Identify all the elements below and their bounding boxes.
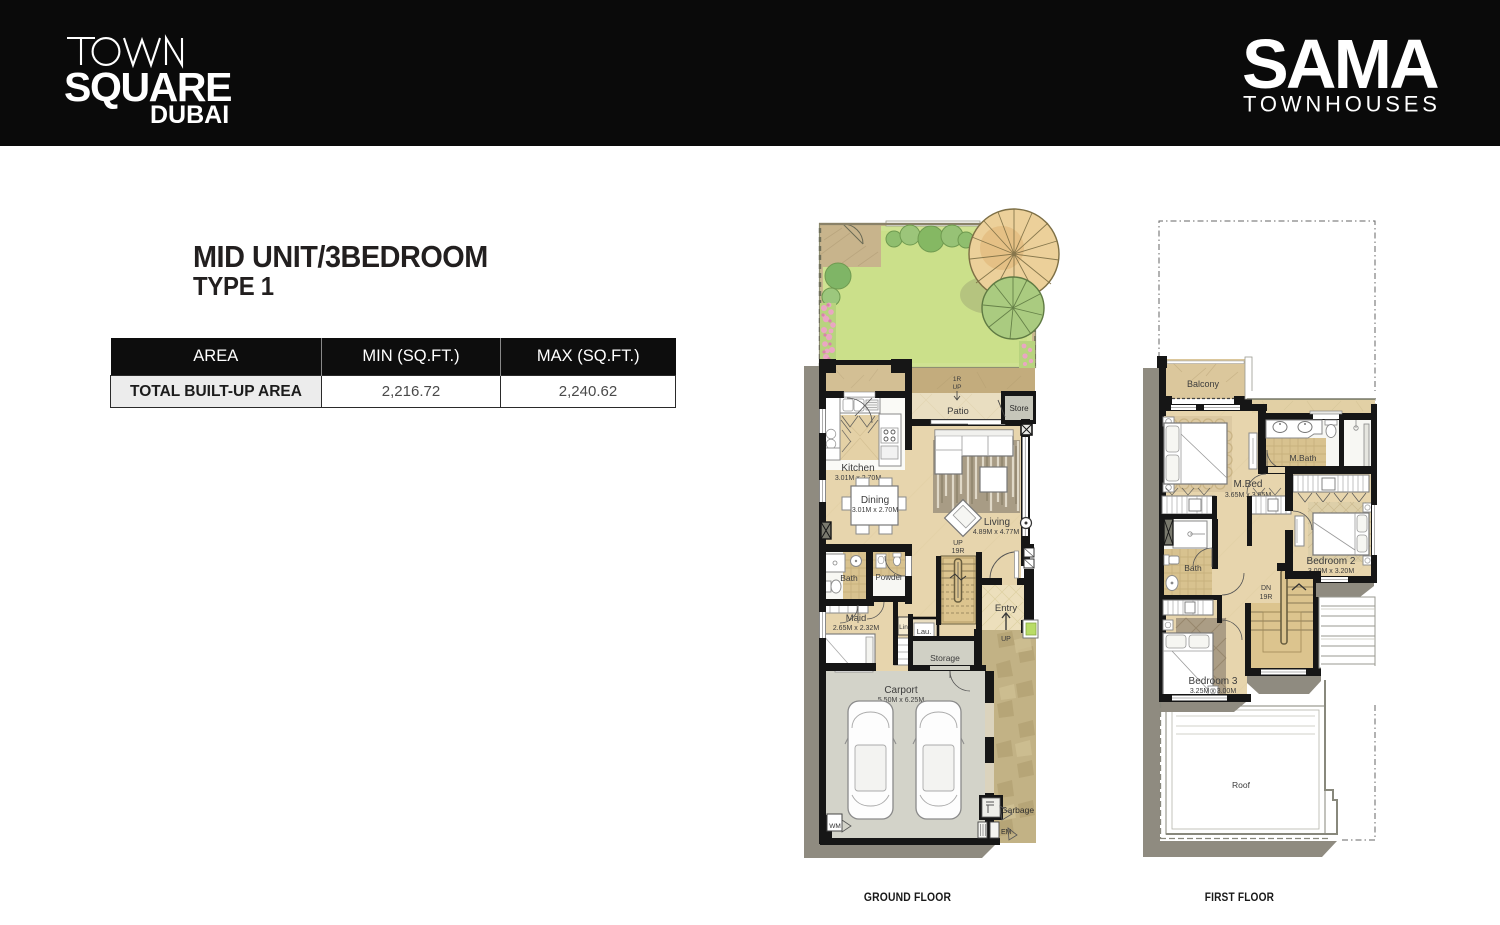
svg-text:3.25M x 3.00M: 3.25M x 3.00M <box>1190 688 1236 695</box>
svg-text:M.Bath: M.Bath <box>1290 453 1317 463</box>
svg-text:4.89M x 4.77M: 4.89M x 4.77M <box>973 529 1019 536</box>
svg-text:Roof: Roof <box>1232 780 1251 790</box>
svg-text:Powder: Powder <box>875 573 902 582</box>
svg-text:19R: 19R <box>1260 594 1273 601</box>
svg-text:WM: WM <box>829 823 841 830</box>
svg-text:Kitchen: Kitchen <box>841 463 874 474</box>
svg-text:UP: UP <box>1001 636 1011 643</box>
svg-text:Carport: Carport <box>884 685 918 696</box>
svg-text:Storage: Storage <box>930 653 960 663</box>
svg-text:UP: UP <box>952 384 961 391</box>
svg-text:19R: 19R <box>952 548 965 555</box>
svg-text:Lau.: Lau. <box>917 627 932 636</box>
svg-text:2.65M x 2.32M: 2.65M x 2.32M <box>833 625 879 632</box>
svg-text:Bath: Bath <box>840 573 858 583</box>
svg-text:Bedroom 3: Bedroom 3 <box>1189 676 1238 687</box>
svg-text:Bedroom 2: Bedroom 2 <box>1307 556 1356 567</box>
svg-text:3.01M x 2.70M: 3.01M x 2.70M <box>852 507 898 514</box>
svg-text:Dining: Dining <box>861 495 889 506</box>
svg-text:DN: DN <box>1261 585 1271 592</box>
svg-text:Lin: Lin <box>899 624 908 631</box>
svg-text:Balcony: Balcony <box>1187 379 1220 389</box>
svg-text:Patio: Patio <box>947 406 969 417</box>
svg-text:UP: UP <box>953 540 963 547</box>
svg-text:Living: Living <box>984 517 1010 528</box>
svg-text:1R: 1R <box>953 376 962 383</box>
svg-text:Maid: Maid <box>846 613 867 624</box>
svg-text:Store: Store <box>1009 404 1029 413</box>
svg-text:M.Bed: M.Bed <box>1234 479 1263 490</box>
